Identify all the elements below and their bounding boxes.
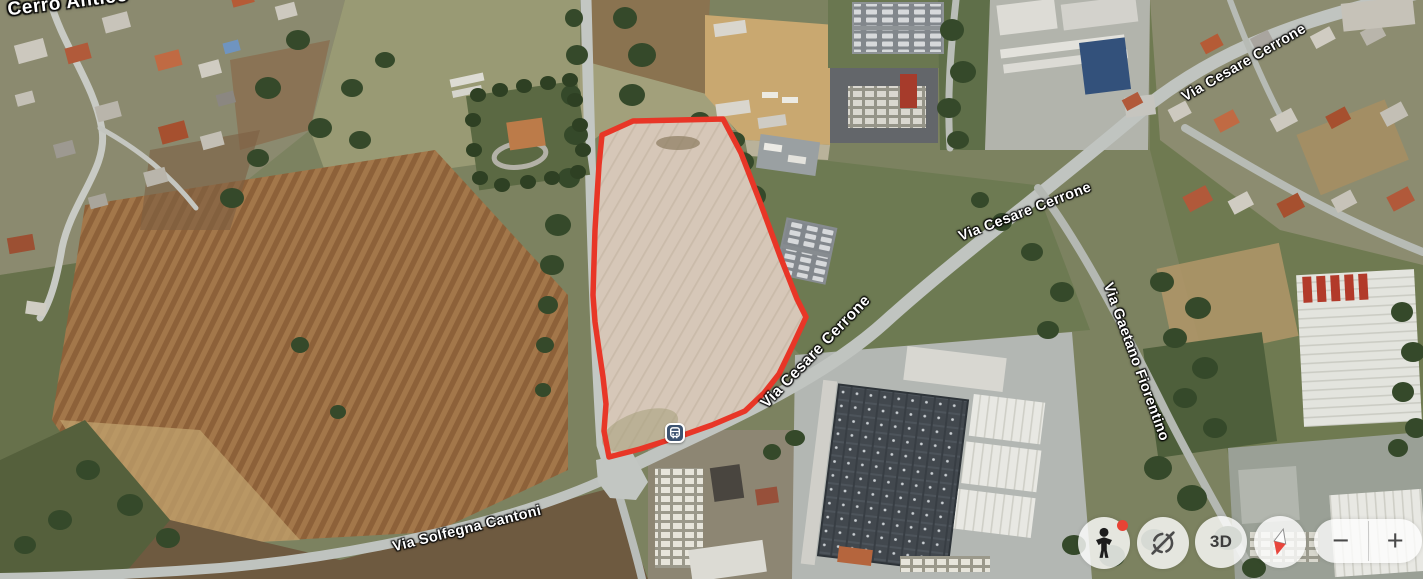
compass-needle-icon <box>1265 527 1295 557</box>
3d-button[interactable]: 3D <box>1195 516 1247 568</box>
zoom-control: − + <box>1314 519 1422 563</box>
bus-stop-icon <box>669 427 681 439</box>
bus-stop-marker[interactable] <box>665 423 685 443</box>
zoom-out-button[interactable]: − <box>1314 519 1368 563</box>
zoom-in-button[interactable]: + <box>1369 519 1423 563</box>
satellite-map-view[interactable]: Cerro Antico Via Cesare Cerrone Via Cesa… <box>0 0 1423 579</box>
auto-rotate-button[interactable] <box>1137 517 1189 569</box>
compass-button[interactable] <box>1254 516 1306 568</box>
satellite-imagery[interactable] <box>0 0 1423 579</box>
pegman-notification-dot <box>1117 520 1128 531</box>
auto-rotate-off-icon <box>1147 527 1179 559</box>
pegman-icon <box>1091 527 1117 559</box>
3d-button-label: 3D <box>1210 532 1232 552</box>
